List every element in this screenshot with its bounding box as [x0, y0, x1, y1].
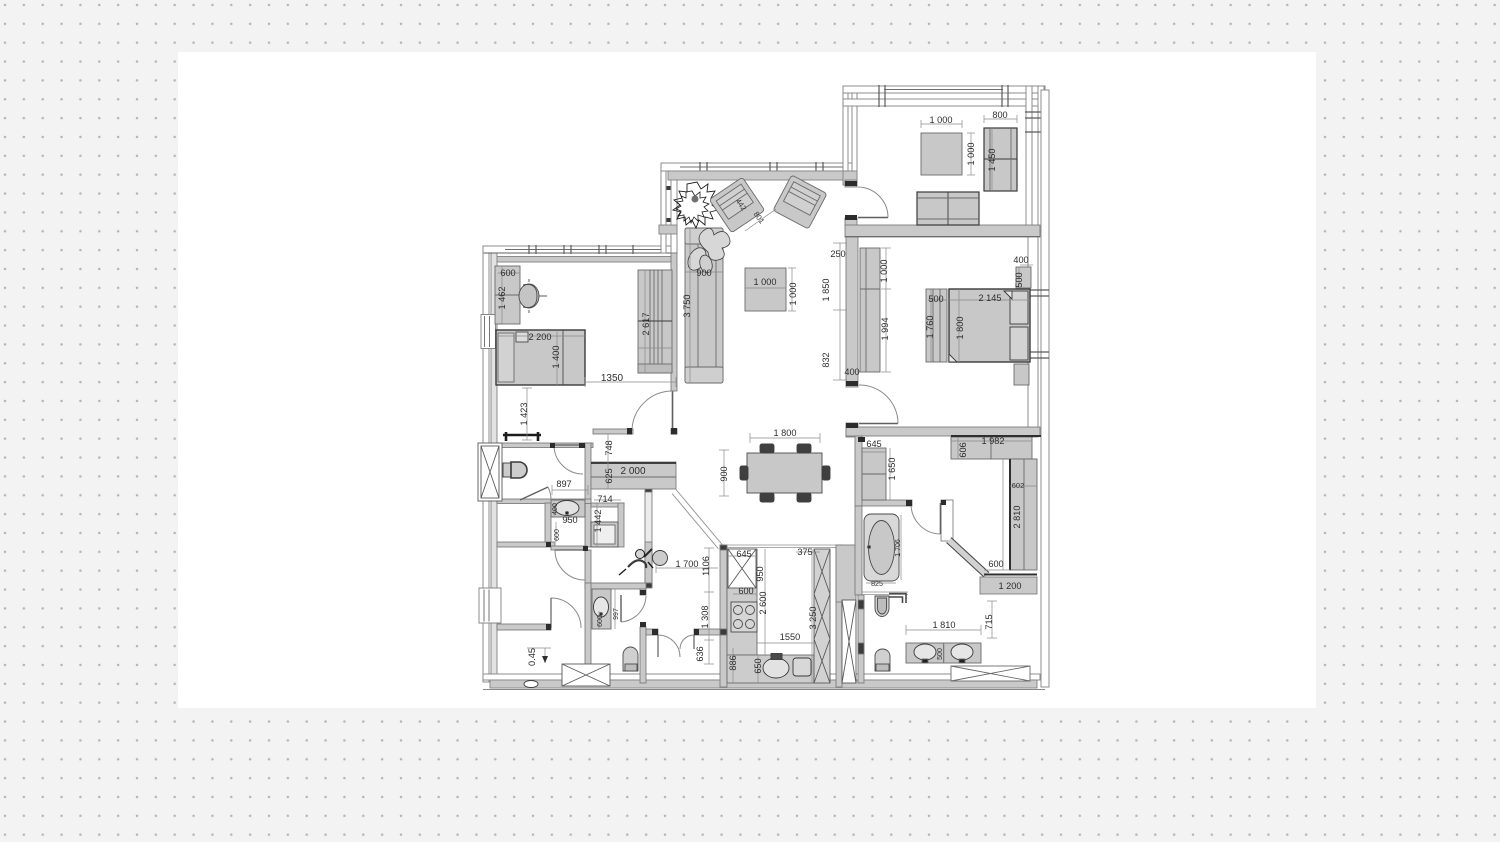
svg-text:1 800: 1 800: [774, 428, 797, 438]
svg-text:1 000: 1 000: [754, 277, 777, 287]
svg-text:600: 600: [988, 559, 1003, 569]
svg-text:3 750: 3 750: [682, 295, 692, 318]
svg-text:1 000: 1 000: [966, 143, 976, 166]
svg-text:645: 645: [866, 439, 881, 449]
svg-text:600: 600: [500, 268, 515, 278]
svg-text:2 617: 2 617: [641, 313, 651, 336]
svg-text:400: 400: [552, 503, 559, 515]
svg-text:2 145: 2 145: [979, 293, 1002, 303]
svg-text:1 800: 1 800: [955, 317, 965, 340]
svg-text:1 442: 1 442: [593, 510, 603, 533]
svg-text:825: 825: [871, 581, 883, 588]
svg-text:650: 650: [753, 658, 763, 673]
svg-text:900: 900: [696, 268, 711, 278]
svg-text:600: 600: [554, 529, 561, 541]
svg-text:1550: 1550: [780, 632, 800, 642]
svg-text:3 250: 3 250: [808, 607, 818, 630]
svg-text:636: 636: [695, 646, 705, 661]
svg-text:500: 500: [937, 648, 944, 660]
svg-text:1 760: 1 760: [925, 316, 935, 339]
svg-text:715: 715: [984, 614, 994, 629]
svg-text:250: 250: [830, 249, 845, 259]
svg-text:950: 950: [755, 566, 765, 581]
svg-text:500: 500: [1014, 272, 1024, 287]
svg-text:1 462: 1 462: [497, 287, 507, 310]
svg-text:1 000: 1 000: [930, 115, 953, 125]
svg-text:1 200: 1 200: [999, 581, 1022, 591]
svg-text:1 982: 1 982: [982, 436, 1005, 446]
svg-text:600: 600: [738, 586, 753, 596]
svg-text:748: 748: [604, 440, 614, 455]
svg-text:1 000: 1 000: [879, 260, 889, 283]
svg-text:0.45: 0.45: [527, 648, 537, 666]
svg-text:1 400: 1 400: [551, 346, 561, 369]
svg-text:714: 714: [597, 494, 612, 504]
svg-text:832: 832: [821, 352, 831, 367]
svg-text:400: 400: [1013, 255, 1028, 265]
svg-text:1 423: 1 423: [519, 403, 529, 426]
svg-text:500: 500: [928, 294, 943, 304]
svg-text:2 000: 2 000: [620, 466, 645, 477]
svg-text:1 706: 1 706: [895, 539, 902, 557]
svg-text:2 200: 2 200: [529, 332, 552, 342]
svg-text:900: 900: [719, 466, 729, 481]
svg-text:897: 897: [556, 479, 571, 489]
svg-text:1 994: 1 994: [880, 318, 890, 341]
svg-text:1 000: 1 000: [788, 283, 798, 306]
svg-text:375: 375: [797, 547, 812, 557]
svg-text:1350: 1350: [601, 373, 624, 384]
svg-text:2 600: 2 600: [758, 592, 768, 615]
svg-text:1 308: 1 308: [700, 606, 710, 629]
svg-text:1 700: 1 700: [676, 559, 699, 569]
svg-text:1106: 1106: [701, 556, 711, 576]
svg-text:800: 800: [992, 110, 1007, 120]
svg-text:625: 625: [604, 468, 614, 483]
svg-text:886: 886: [728, 655, 738, 670]
svg-text:600: 600: [597, 615, 604, 627]
svg-text:1 650: 1 650: [887, 458, 897, 481]
svg-text:2 810: 2 810: [1012, 506, 1022, 529]
svg-text:606: 606: [958, 442, 968, 457]
svg-text:997: 997: [613, 608, 620, 620]
svg-text:602: 602: [1012, 481, 1025, 490]
svg-text:400: 400: [844, 367, 859, 377]
svg-text:1 810: 1 810: [933, 620, 956, 630]
svg-text:1 850: 1 850: [821, 279, 831, 302]
svg-text:950: 950: [562, 515, 577, 525]
svg-text:645: 645: [736, 549, 751, 559]
svg-text:1 450: 1 450: [987, 149, 997, 172]
